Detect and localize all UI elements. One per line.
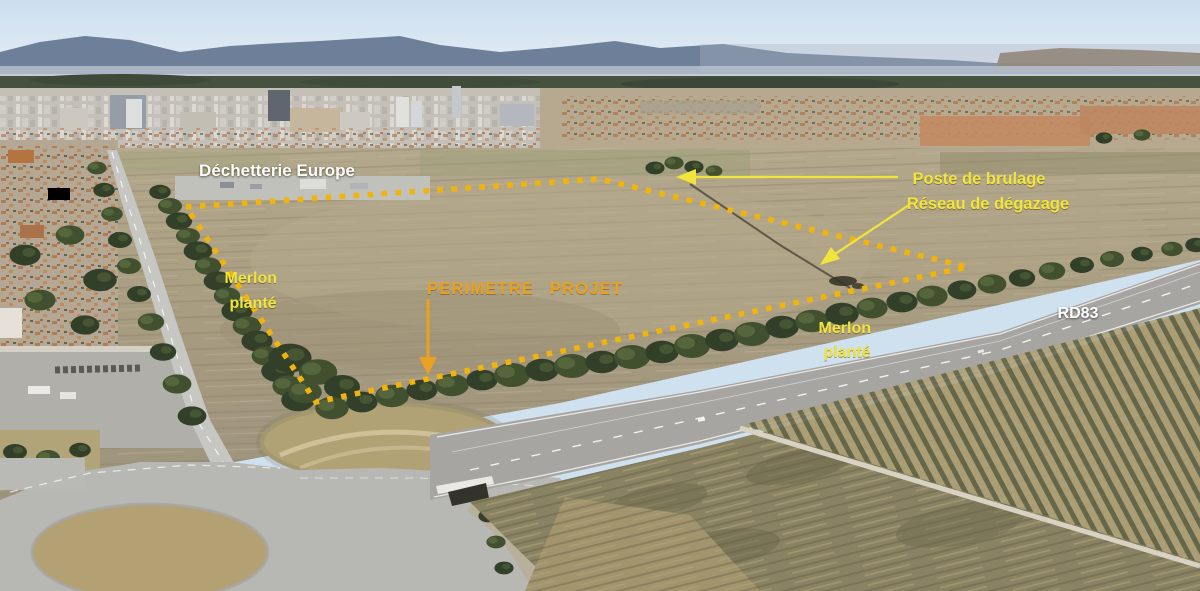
label-rd83: RD83 (1058, 305, 1099, 322)
aerial-photo-canvas: Déchetterie Europe Poste de brulage Rése… (0, 0, 1200, 591)
label-poste-de-brulage: Poste de brulage (913, 170, 1046, 188)
aerial-photo: Déchetterie Europe Poste de brulage Rése… (0, 0, 1200, 591)
label-dechetterie-europe: Déchetterie Europe (199, 161, 355, 180)
label-reseau-de-degazage: Réseau de dégazage (907, 195, 1069, 213)
label-perimetre-projet: PERIMETRE PROJET (427, 280, 623, 298)
